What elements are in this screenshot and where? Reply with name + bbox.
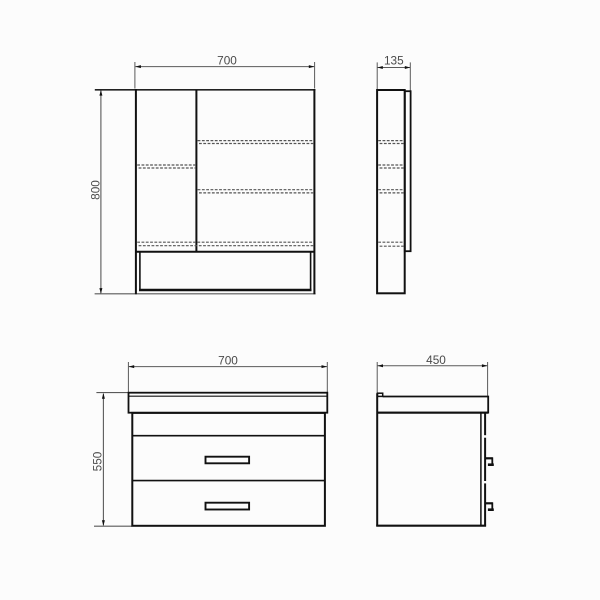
svg-text:700: 700 — [218, 353, 238, 367]
svg-text:700: 700 — [217, 53, 237, 67]
svg-text:450: 450 — [426, 353, 446, 367]
svg-text:135: 135 — [384, 54, 404, 68]
svg-text:550: 550 — [90, 451, 104, 471]
svg-text:800: 800 — [89, 180, 103, 200]
